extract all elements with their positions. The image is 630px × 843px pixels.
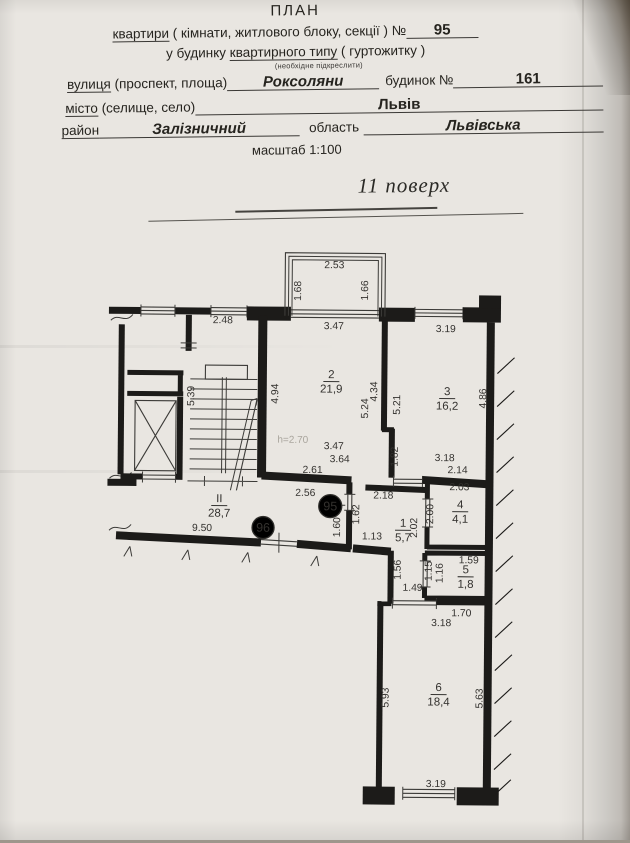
room-area: 1,8 (458, 579, 474, 591)
dimension-label: 2.56 (295, 488, 315, 499)
door-swing-marks (124, 546, 319, 566)
dimension-label: 1.70 (451, 608, 471, 619)
room-area: 16,2 (436, 401, 458, 413)
dimension-label: 1.62 (351, 504, 362, 524)
dimension-label: 4.94 (270, 383, 281, 403)
dimension-label: 4.34 (369, 381, 380, 401)
dimension-label: 2.14 (447, 465, 467, 476)
room-number: 5 (462, 564, 469, 576)
room-number: 1 (400, 518, 407, 530)
room-number: II (216, 493, 222, 505)
dimension-label: 4.86 (478, 388, 489, 408)
dimension-label: 2.18 (373, 491, 393, 502)
apartment-circle-label: 96 (256, 521, 270, 535)
room-area: 28,7 (208, 508, 230, 520)
dimension-label: 1.66 (360, 280, 371, 300)
dimension-label: 3.19 (426, 779, 446, 790)
dimension-label: 3.18 (435, 453, 455, 464)
room-area: 5,7 (395, 532, 411, 544)
dimension-label: 2.03 (449, 482, 469, 493)
room-area: 21,9 (320, 384, 342, 396)
wall-block (463, 307, 501, 322)
dimension-label: 2.61 (302, 465, 322, 476)
room-area: 4,1 (452, 514, 468, 526)
room-number: 4 (457, 499, 464, 511)
apartment-number-circles: 9596 (252, 494, 342, 539)
dimension-label: 2.53 (324, 260, 344, 271)
dimension-label: 1.60 (332, 517, 343, 537)
dimension-label: 3.47 (324, 441, 344, 452)
stairs (187, 365, 258, 491)
adjacent-section-hatching (494, 358, 515, 796)
dimension-label: 2.48 (213, 315, 233, 326)
wall-block (247, 306, 291, 320)
dimension-label: 1.56 (393, 559, 404, 579)
dimension-label: 1.82 (390, 446, 401, 466)
dimension-label: 5.39 (186, 386, 197, 406)
dimension-label: 5.63 (474, 688, 485, 708)
room-area: 18,4 (427, 696, 450, 708)
room-number: 6 (435, 682, 442, 694)
dimension-label: 9.50 (192, 523, 212, 534)
dimension-labels: 2.531.681.662.483.473.195.394.945.244.34… (183, 259, 491, 791)
wall-block (363, 786, 395, 804)
wall-block (457, 787, 499, 805)
dimension-label: 1.15 (424, 561, 435, 581)
dimension-label: 3.19 (436, 324, 456, 335)
floor-plan: 2.531.681.662.483.473.195.394.945.244.34… (0, 0, 630, 843)
room-number: 3 (444, 386, 451, 398)
dimension-label: h=2.70 (277, 435, 308, 446)
elevator-x-mark (135, 400, 177, 470)
dimension-label: 2.00 (425, 504, 436, 524)
room-number: 2 (328, 369, 335, 381)
wall-block (479, 295, 501, 308)
dimension-label: 1.16 (435, 563, 446, 583)
dimension-label: 1.13 (362, 531, 382, 542)
stair-direction-line (236, 398, 257, 490)
dimension-label: 1.68 (293, 281, 304, 301)
dimension-label: 3.47 (324, 321, 344, 332)
dimension-label: 5.93 (380, 687, 391, 707)
dimension-label: 5.21 (392, 394, 403, 414)
dimension-label: 1.49 (402, 583, 422, 594)
dimension-label: 3.64 (330, 454, 350, 465)
apartment-circle-label: 95 (323, 499, 337, 513)
dimension-label: 3.18 (431, 618, 451, 629)
